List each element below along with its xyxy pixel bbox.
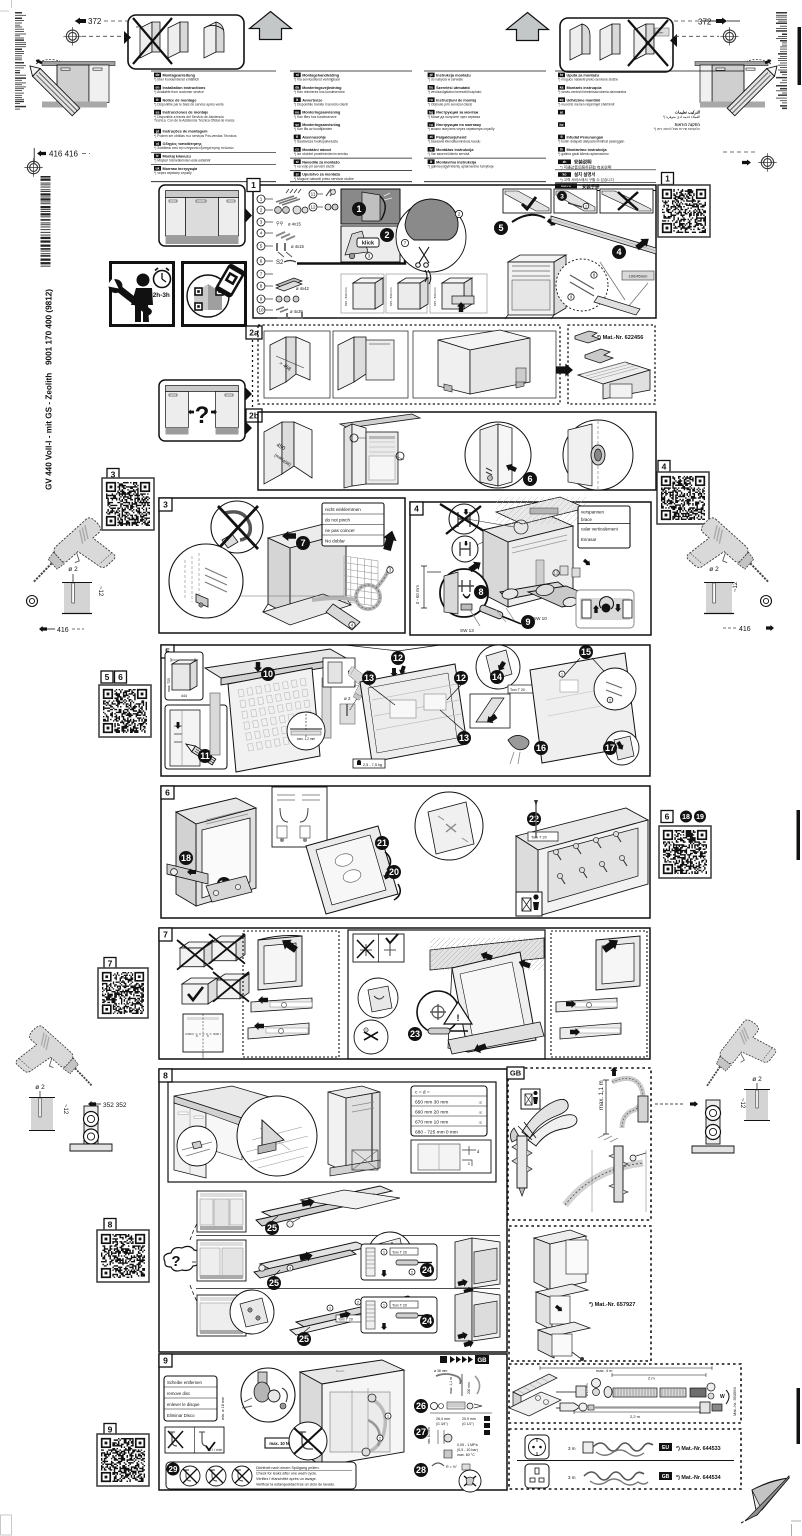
svg-text:(G 3/4"): (G 3/4")	[436, 1422, 448, 1426]
svg-text:ø 4x15: ø 4x15	[291, 244, 304, 249]
svg-text:3: 3	[560, 193, 564, 200]
svg-text:1: 1	[585, 204, 587, 208]
svg-text:9: 9	[163, 1356, 168, 1366]
svg-text:*) Mat.-Nr. 644534: *) Mat.-Nr. 644534	[676, 1475, 721, 1481]
svg-text:*) Mat.-Nr. 657927: *) Mat.-Nr. 657927	[589, 1302, 635, 1308]
svg-text:444: 444	[181, 694, 187, 698]
svg-text:ø 2: ø 2	[35, 1084, 45, 1091]
svg-text:ø 2: ø 2	[709, 566, 719, 573]
svg-text:calar verticalement: calar verticalement	[581, 527, 619, 532]
svg-text:(0,5 - 10 bar): (0,5 - 10 bar)	[457, 1448, 478, 1452]
svg-text:6: 6	[665, 812, 670, 822]
svg-text:S2: S2	[276, 260, 284, 266]
svg-text:13: 13	[364, 673, 374, 683]
svg-text:SW 13: SW 13	[460, 628, 474, 633]
svg-text:Torx T 20: Torx T 20	[338, 1318, 353, 1322]
svg-text:Torx T 20: Torx T 20	[392, 1304, 407, 1308]
svg-text:uk: uk	[156, 167, 160, 171]
svg-text:416 416: 416 416	[49, 150, 78, 159]
svg-text:max. 4 m: max. 4 m	[596, 1368, 613, 1373]
svg-text:815 - 860 mm: 815 - 860 mm	[433, 287, 437, 306]
svg-text:verspannen: verspannen	[581, 510, 605, 515]
svg-text:4: 4	[414, 504, 419, 514]
svg-text:6: 6	[118, 672, 123, 682]
svg-text:~12: ~12	[62, 1104, 68, 1115]
svg-text:!: !	[457, 1013, 460, 1023]
svg-text:1: 1	[251, 180, 256, 190]
svg-text:?: ?	[171, 1253, 180, 1270]
svg-text:remove disc: remove disc	[167, 1391, 191, 1396]
svg-text:12: 12	[310, 205, 316, 210]
svg-text:min. 10 mm: min. 10 mm	[427, 1427, 431, 1444]
svg-text:2: 2	[260, 208, 263, 213]
svg-text:2: 2	[458, 212, 461, 217]
svg-text:Vérifiez l´étanchéité après un: Vérifiez l´étanchéité après un lavage.	[256, 1477, 317, 1481]
svg-text:11: 11	[311, 192, 316, 197]
svg-text:8: 8	[260, 284, 263, 289]
svg-text:*) Disponible par le biais du: *) Disponible par le biais du service ap…	[154, 102, 224, 106]
svg-text:6: 6	[527, 474, 532, 484]
svg-text:*) mund të merren nëpërmjet sh: *) mund të merren nëpërmjet shërbimit	[558, 102, 615, 106]
svg-text:2,5 - 7,5 kg: 2,5 - 7,5 kg	[363, 763, 382, 767]
svg-text:0 - 60 mm: 0 - 60 mm	[415, 585, 420, 604]
svg-text:23: 23	[410, 1029, 420, 1039]
svg-text:*) galima įsigyti klientų apta: *) galima įsigyti klientų aptarnavimo ta…	[428, 164, 494, 168]
svg-text:11: 11	[200, 751, 210, 761]
svg-text:25: 25	[299, 1334, 309, 1344]
svg-text:*) العملاء خدمة لدى متوفرة: *) العملاء خدمة لدى متوفرة	[663, 115, 700, 119]
svg-text:~12: ~12	[733, 581, 739, 592]
svg-text:Verificar la estanqueidad tras: Verificar la estanqueidad tras un ciclo …	[256, 1483, 335, 1487]
svg-text:2: 2	[384, 230, 389, 240]
svg-text:*) über Kundendienst erhältlic: *) über Kundendienst erhältlich	[154, 78, 199, 82]
svg-text:↓c: ↓c	[478, 1110, 482, 1115]
svg-text:1: 1	[665, 174, 670, 184]
svg-text:Enrasar: Enrasar	[581, 537, 597, 542]
svg-text:28: 28	[416, 1465, 426, 1475]
svg-text:670 mm 10 mm: 670 mm 10 mm	[415, 1120, 448, 1126]
svg-text:*) Kan fåes hos kundeservice: *) Kan fåes hos kundeservice	[294, 115, 337, 119]
svg-text:*) Kan fås av kundtjänsten: *) Kan fås av kundtjänsten	[294, 127, 333, 131]
svg-text:*) 고객 서비스에서 구할 수 있습니다: *) 고객 서비스에서 구할 수 있습니다	[560, 177, 615, 182]
svg-text:he: he	[560, 123, 564, 127]
svg-text:max. 725: max. 725	[167, 678, 171, 692]
svg-text:7: 7	[404, 241, 407, 246]
svg-text:nicht einklemmen: nicht einklemmen	[325, 507, 361, 512]
svg-text:0,05 - 1 MPa: 0,05 - 1 MPa	[457, 1443, 478, 1447]
svg-text:el: el	[156, 142, 159, 146]
svg-text:min. ø 18 mm: min. ø 18 mm	[221, 1397, 225, 1420]
svg-text:Check for leaks after one wash: Check for leaks after one wash cycle.	[256, 1472, 317, 1476]
svg-text:No doblar: No doblar	[325, 539, 345, 544]
svg-text:klick: klick	[362, 241, 375, 247]
svg-text:ko: ko	[563, 173, 567, 177]
svg-text:16: 16	[536, 743, 546, 753]
svg-text:cs: cs	[295, 148, 299, 152]
svg-text:372: 372	[88, 17, 102, 26]
svg-text:*) Via servicedienst verkrijgb: *) Via servicedienst verkrijgbaar	[294, 78, 341, 82]
svg-text:416: 416	[739, 626, 751, 633]
svg-text:27: 27	[416, 1427, 426, 1437]
svg-text:*) διατίθεται από την υπηρεσία: *) διατίθεται από την υπηρεσία εξυπηρέτη…	[154, 146, 234, 150]
svg-text:zh: zh	[563, 160, 567, 164]
svg-text:9: 9	[260, 297, 263, 302]
svg-text:*) vevőszolgálaton keresztül k: *) vevőszolgálaton keresztül kapható	[428, 90, 482, 94]
svg-text:*) Може да получите чрез серви: *) Може да получите чрез сервиза	[428, 115, 481, 119]
svg-text:3 m: 3 m	[568, 1475, 576, 1480]
svg-text:*) Var saņemt klientu servisā: *) Var saņemt klientu servisā	[428, 152, 470, 156]
svg-text:Scheibe entfernen: Scheibe entfernen	[167, 1380, 202, 1385]
svg-text:nl: nl	[296, 73, 299, 77]
svg-text:ro: ro	[429, 98, 432, 102]
svg-text:*) servis-centrshi khelmisacvd: *) servis-centrshi khelmisacvdomia daxma…	[558, 90, 626, 94]
svg-text:pl: pl	[430, 73, 433, 77]
svg-text:8: 8	[478, 587, 483, 597]
svg-text:*) через сервісну службу: *) через сервісну службу	[154, 171, 192, 175]
svg-text:brace: brace	[581, 517, 593, 522]
svg-text:max. 1,1 m: max. 1,1 m	[599, 1080, 605, 1110]
svg-text:680 - 725 mm 0 mm: 680 - 725 mm 0 mm	[415, 1130, 458, 1136]
svg-text:da: da	[295, 86, 299, 90]
svg-text:19: 19	[696, 814, 704, 821]
svg-text:815 - 860 mm: 815 - 860 mm	[389, 287, 393, 306]
svg-text:12: 12	[554, 571, 559, 576]
svg-text:*) Saatavissa huoltopalvelusta: *) Saatavissa huoltopalvelusta	[294, 140, 338, 144]
svg-text:th: th	[560, 148, 563, 152]
svg-text:*) Kan rekvireres hos kundeser: *) Kan rekvireres hos kundeservice	[294, 90, 345, 94]
svg-text:*) 可通过售后服务获取 有关说明: *) 可通过售后服务获取 有关说明	[560, 164, 612, 169]
svg-text:*) Mat.-Nr. 622456: *) Mat.-Nr. 622456	[597, 335, 643, 341]
svg-text:es: es	[156, 110, 160, 114]
svg-text:ne pas coincer: ne pas coincer	[325, 528, 355, 533]
svg-text:ru: ru	[429, 123, 432, 127]
svg-text:*) Obţinute prin serviciul cli: *) Obţinute prin serviciul clienţi	[428, 102, 473, 106]
svg-text:14: 14	[492, 672, 502, 682]
svg-text:*) Podem ser obtidas m.o servi: *) Podem ser obtidas m.o serviços Pós-ve…	[154, 134, 237, 138]
svg-text:ø 4x15: ø 4x15	[288, 222, 301, 227]
svg-text:Eliminar Disco: Eliminar Disco	[167, 1413, 195, 1418]
svg-text:9: 9	[525, 617, 530, 627]
svg-text:Dichtheit nach einem Spülgang: Dichtheit nach einem Spülgang prüfen.	[256, 1466, 320, 1470]
svg-text:352 352: 352 352	[103, 1102, 127, 1109]
svg-text:7: 7	[300, 538, 305, 548]
svg-text:ø 2: ø 2	[68, 566, 78, 573]
svg-text:*) galima gauti klientu aptarn: *) galima gauti klientu aptarnavimo	[558, 152, 609, 156]
svg-text:2,2 m: 2,2 m	[630, 1414, 641, 1419]
svg-text:?: ?	[195, 402, 210, 429]
svg-text:max. 1,1 m: max. 1,1 m	[449, 1377, 453, 1394]
svg-text:SW 10: SW 10	[533, 616, 547, 621]
svg-text:fi: fi	[560, 135, 562, 139]
svg-text:4: 4	[616, 247, 621, 257]
svg-text:6: 6	[260, 259, 263, 264]
svg-text:*) na voljo pri servisni služb: *) na voljo pri servisni službi	[294, 164, 335, 168]
svg-text:x: x	[207, 1034, 209, 1038]
svg-text:Torx T 20: Torx T 20	[510, 688, 525, 692]
svg-text:⚲⚲: ⚲⚲	[276, 221, 284, 227]
svg-text:10 l / min: 10 l / min	[207, 1448, 222, 1452]
svg-text:GB: GB	[510, 1069, 522, 1078]
svg-text:8: 8	[163, 1071, 168, 1081]
svg-text:26: 26	[416, 1401, 426, 1411]
svg-text:660 mm 20 mm: 660 mm 20 mm	[415, 1110, 448, 1116]
svg-text:~12: ~12	[97, 586, 103, 597]
svg-text:8: 8	[108, 1220, 113, 1230]
svg-text:4: 4	[662, 462, 667, 472]
svg-text:*) boleh didapati daripada khi: *) boleh didapati daripada khidmat pelan…	[558, 140, 625, 144]
svg-text:~2h-3h: ~2h-3h	[149, 292, 170, 299]
svg-text:25: 25	[267, 1223, 277, 1233]
svg-text:9: 9	[108, 1425, 113, 1435]
svg-text:*) Mat.-Nr. 644533: *) Mat.-Nr. 644533	[676, 1446, 721, 1452]
svg-text:bg: bg	[429, 110, 433, 114]
svg-text:hu: hu	[429, 86, 433, 90]
svg-text:ø 9,2 mm: ø 9,2 mm	[585, 1383, 589, 1396]
svg-text:ø 4x42: ø 4x42	[296, 286, 309, 291]
svg-text:*) moguće nabaviti preko servi: *) moguće nabaviti preko servisne službe	[558, 78, 618, 82]
svg-text:~12: ~12	[739, 1098, 745, 1109]
svg-text:1: 1	[260, 197, 263, 202]
svg-text:5: 5	[260, 244, 263, 249]
svg-text:*) lze obdržet prostřednictvím: *) lze obdržet prostřednictvím servisu	[294, 152, 348, 156]
svg-text:GV 440 Voll-I - mit GS - Zeoli: GV 440 Voll-I - mit GS - Zeolith	[45, 373, 54, 490]
svg-text:2 m: 2 m	[648, 1376, 655, 1381]
svg-text:ø 38 mm: ø 38 mm	[434, 1369, 448, 1373]
svg-text:GB: GB	[662, 1474, 670, 1480]
svg-text:x: x	[196, 1034, 198, 1038]
svg-text:5: 5	[498, 223, 503, 233]
svg-text:12: 12	[456, 673, 466, 683]
svg-text:6: 6	[165, 788, 170, 798]
svg-text:enlever le disque: enlever le disque	[167, 1402, 200, 1407]
svg-text:Mat.-Nr. 350564: Mat.-Nr. 350564	[732, 1387, 737, 1416]
svg-text:100/45mm: 100/45mm	[629, 273, 649, 278]
svg-text:7: 7	[108, 959, 113, 969]
svg-text:fi: fi	[296, 135, 298, 139]
svg-text:416: 416	[57, 627, 69, 634]
svg-text:3: 3	[163, 500, 168, 510]
svg-text:9001 170 400 (9812): 9001 170 400 (9812)	[45, 289, 54, 365]
svg-text:W: W	[720, 1394, 725, 1400]
svg-text:15: 15	[581, 647, 591, 657]
svg-text:21: 21	[377, 838, 387, 848]
svg-text:c = d =: c = d =	[415, 1090, 430, 1096]
svg-text:ø 2: ø 2	[344, 696, 351, 701]
svg-text:18: 18	[682, 814, 690, 821]
svg-text:EU: EU	[662, 1445, 669, 1451]
svg-text:*) הלקוחות שירות אצל להשיג נית: *) הלקוחות שירות אצל להשיג ניתן	[654, 127, 700, 131]
svg-text:Torx T 20: Torx T 20	[392, 1251, 407, 1255]
svg-text:do not pinch: do not pinch	[325, 518, 350, 523]
svg-text:13: 13	[459, 733, 469, 743]
svg-text:7: 7	[260, 272, 263, 277]
svg-text:*) Müşteri hizmetlerinden elde: *) Müşteri hizmetlerinden elde edilebili…	[154, 159, 212, 163]
svg-text:no: no	[295, 110, 299, 114]
svg-text:17: 17	[605, 743, 615, 753]
svg-text:R = ½": R = ½"	[446, 1465, 458, 1469]
svg-text:29: 29	[169, 1465, 178, 1474]
svg-text:Técnica. Con de la Asistencia: Técnica. Con de la Asistencia Técnica Of…	[154, 119, 235, 123]
svg-text:200 mm: 200 mm	[467, 1382, 471, 1394]
svg-text:↓c: ↓c	[478, 1120, 482, 1125]
svg-text:26,4 mm: 26,4 mm	[436, 1417, 450, 1421]
svg-text:*) Disponibile tramite il serv: *) Disponibile tramite il servizio clien…	[294, 102, 349, 106]
svg-text:sq: sq	[560, 98, 564, 102]
svg-text:18: 18	[181, 853, 191, 863]
svg-text:max. 1,2 mm: max. 1,2 mm	[297, 737, 316, 741]
svg-text:de: de	[156, 73, 160, 77]
svg-text:20,9 mm: 20,9 mm	[462, 1417, 476, 1421]
svg-text:Bosch: Bosch	[336, 1369, 345, 1373]
svg-text:↓c: ↓c	[478, 1100, 482, 1105]
svg-text:22: 22	[529, 814, 539, 824]
svg-text:sl: sl	[296, 160, 299, 164]
svg-text:c: c	[468, 1161, 470, 1166]
svg-text:25: 25	[269, 1278, 279, 1288]
svg-text:372: 372	[698, 18, 712, 27]
svg-text:10: 10	[263, 669, 273, 679]
svg-text:24: 24	[422, 1265, 432, 1275]
svg-text:ka: ka	[560, 86, 564, 90]
svg-text:*) Moguće nabaviti preko servi: *) Moguće nabaviti preko servisne službe	[294, 177, 354, 181]
svg-text:Torx T 20: Torx T 20	[531, 836, 547, 840]
svg-text:ø 2: ø 2	[752, 1076, 762, 1083]
svg-text:3: 3	[260, 220, 263, 225]
svg-text:2: 2	[609, 698, 611, 702]
svg-text:GB: GB	[478, 1358, 488, 1364]
svg-text:*) Available from customer ser: *) Available from customer service	[154, 90, 204, 94]
svg-text:3 m: 3 m	[568, 1446, 576, 1451]
svg-text:sv: sv	[295, 123, 299, 127]
svg-text:815 - 860 mm: 815 - 860 mm	[344, 287, 348, 306]
svg-text:20: 20	[389, 867, 399, 877]
svg-text:max. 60 °C: max. 60 °C	[457, 1453, 475, 1457]
svg-text:12: 12	[393, 653, 403, 663]
svg-text:24: 24	[422, 1316, 432, 1326]
svg-text:10: 10	[258, 308, 264, 313]
svg-text:(G 1/2"): (G 1/2")	[462, 1422, 474, 1426]
svg-text:7: 7	[163, 930, 168, 940]
svg-text:5: 5	[105, 672, 110, 682]
svg-text:en: en	[156, 86, 160, 90]
svg-text:*) do nabycia w serwisie: *) do nabycia w serwisie	[428, 78, 464, 82]
svg-text:*) saadaval klienditeeninduse: *) saadaval klienditeeninduse kaudu	[428, 140, 481, 144]
svg-text:lv: lv	[430, 148, 433, 152]
svg-text:4: 4	[260, 231, 263, 236]
svg-text:650 mm 30 mm: 650 mm 30 mm	[415, 1100, 448, 1106]
svg-text:1: 1	[356, 204, 361, 214]
svg-text:*) можно получить через сервис: *) можно получить через сервисную службу	[428, 127, 495, 131]
